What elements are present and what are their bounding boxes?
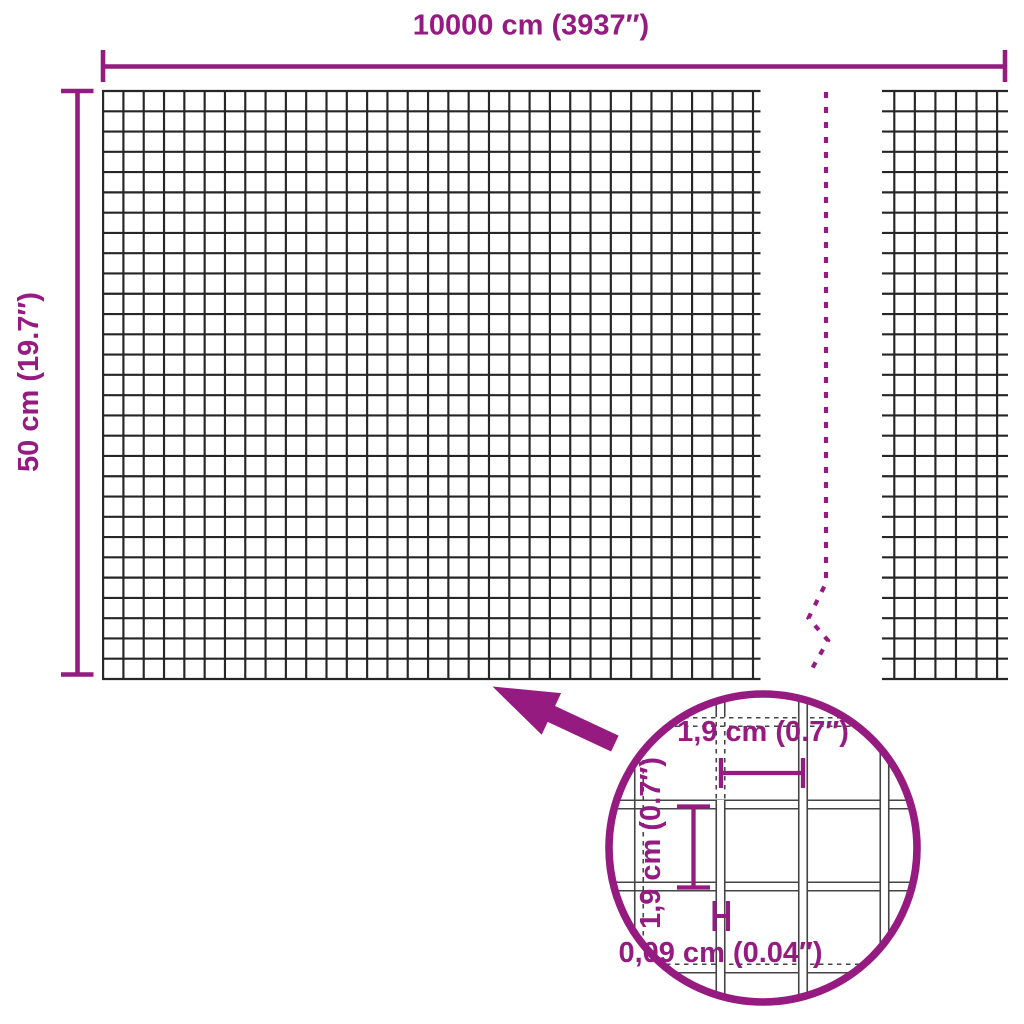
svg-text:50 cm (19.7″): 50 cm (19.7″) xyxy=(13,292,45,472)
svg-text:1,9 cm (0.7″): 1,9 cm (0.7″) xyxy=(677,716,849,748)
svg-text:0,09 cm (0.04″): 0,09 cm (0.04″) xyxy=(618,937,822,969)
svg-text:10000 cm (3937″): 10000 cm (3937″) xyxy=(413,10,649,42)
svg-text:1,9 cm (0.7″): 1,9 cm (0.7″) xyxy=(635,757,667,929)
